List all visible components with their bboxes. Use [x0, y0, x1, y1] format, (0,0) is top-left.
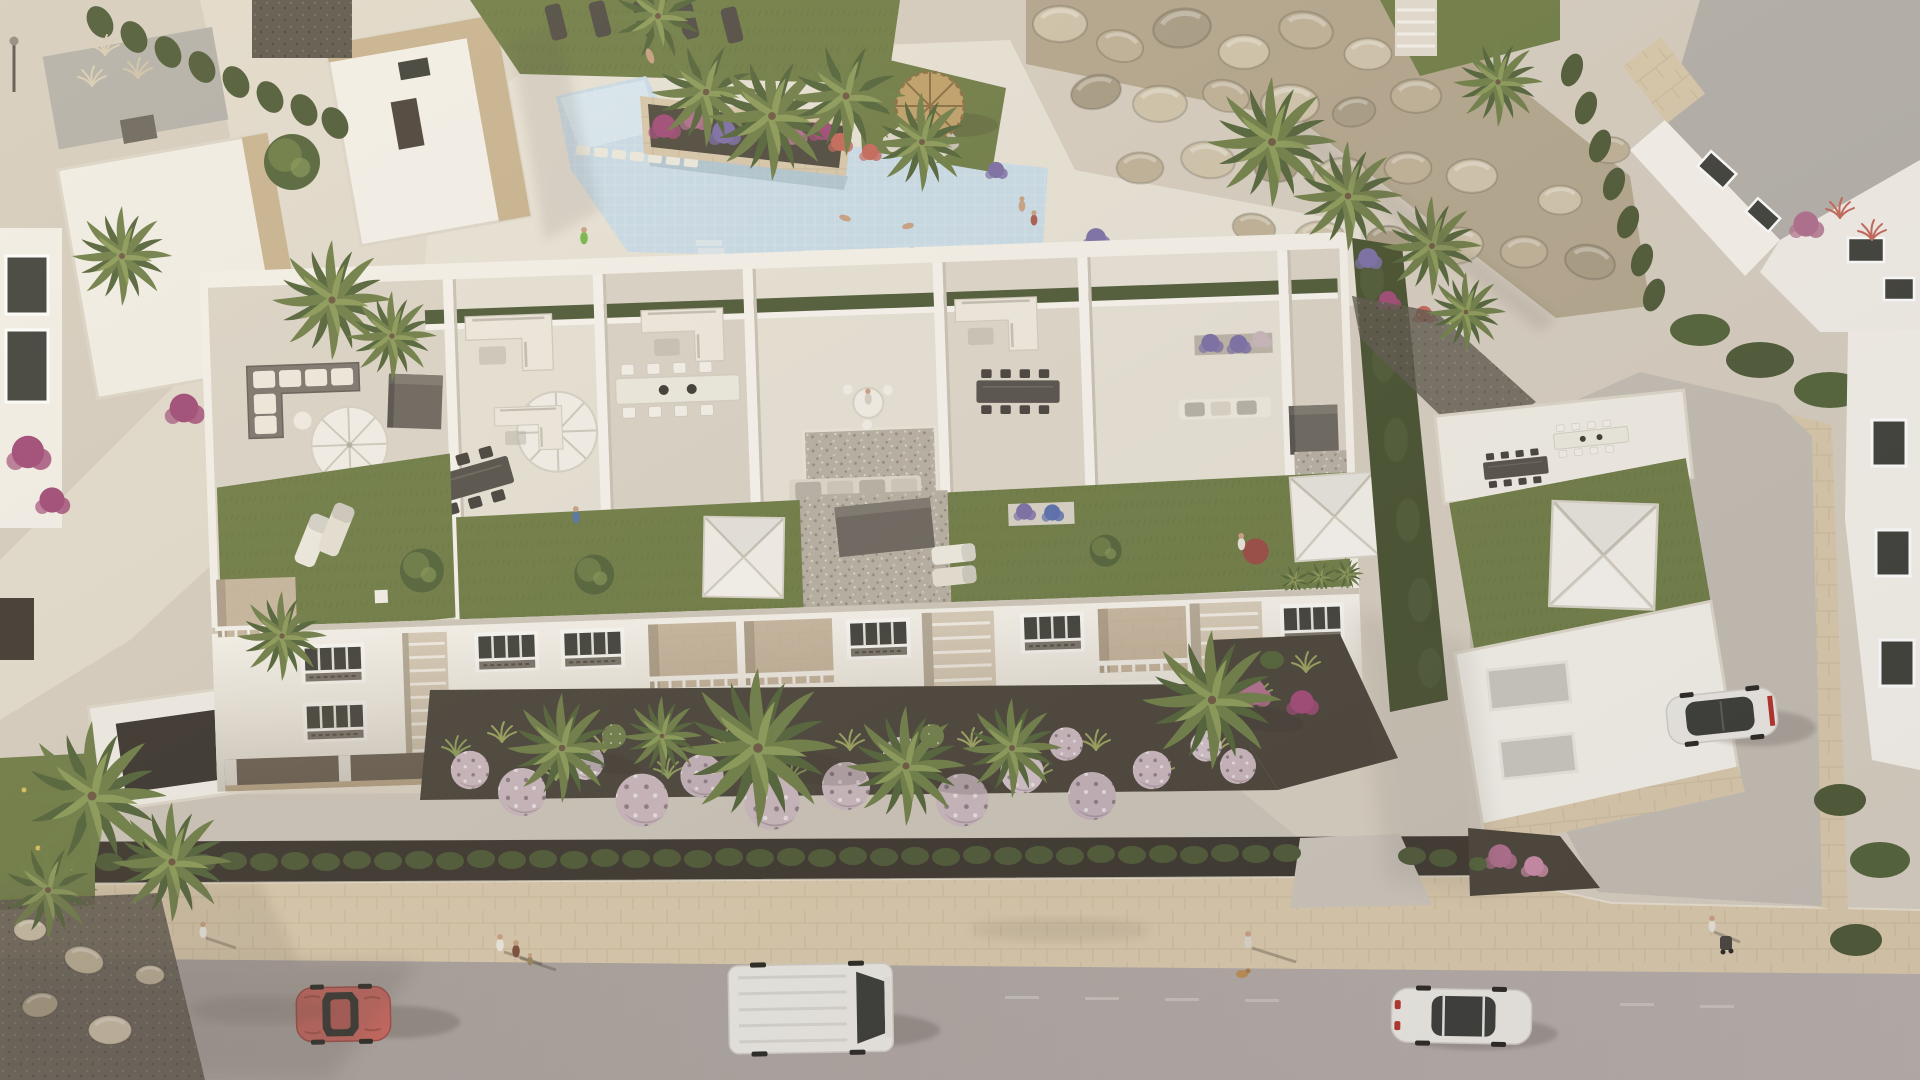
- aerial-render-image: [0, 0, 1920, 1080]
- color-grade-overlay: [0, 0, 1920, 1080]
- scene: [0, 0, 1920, 1080]
